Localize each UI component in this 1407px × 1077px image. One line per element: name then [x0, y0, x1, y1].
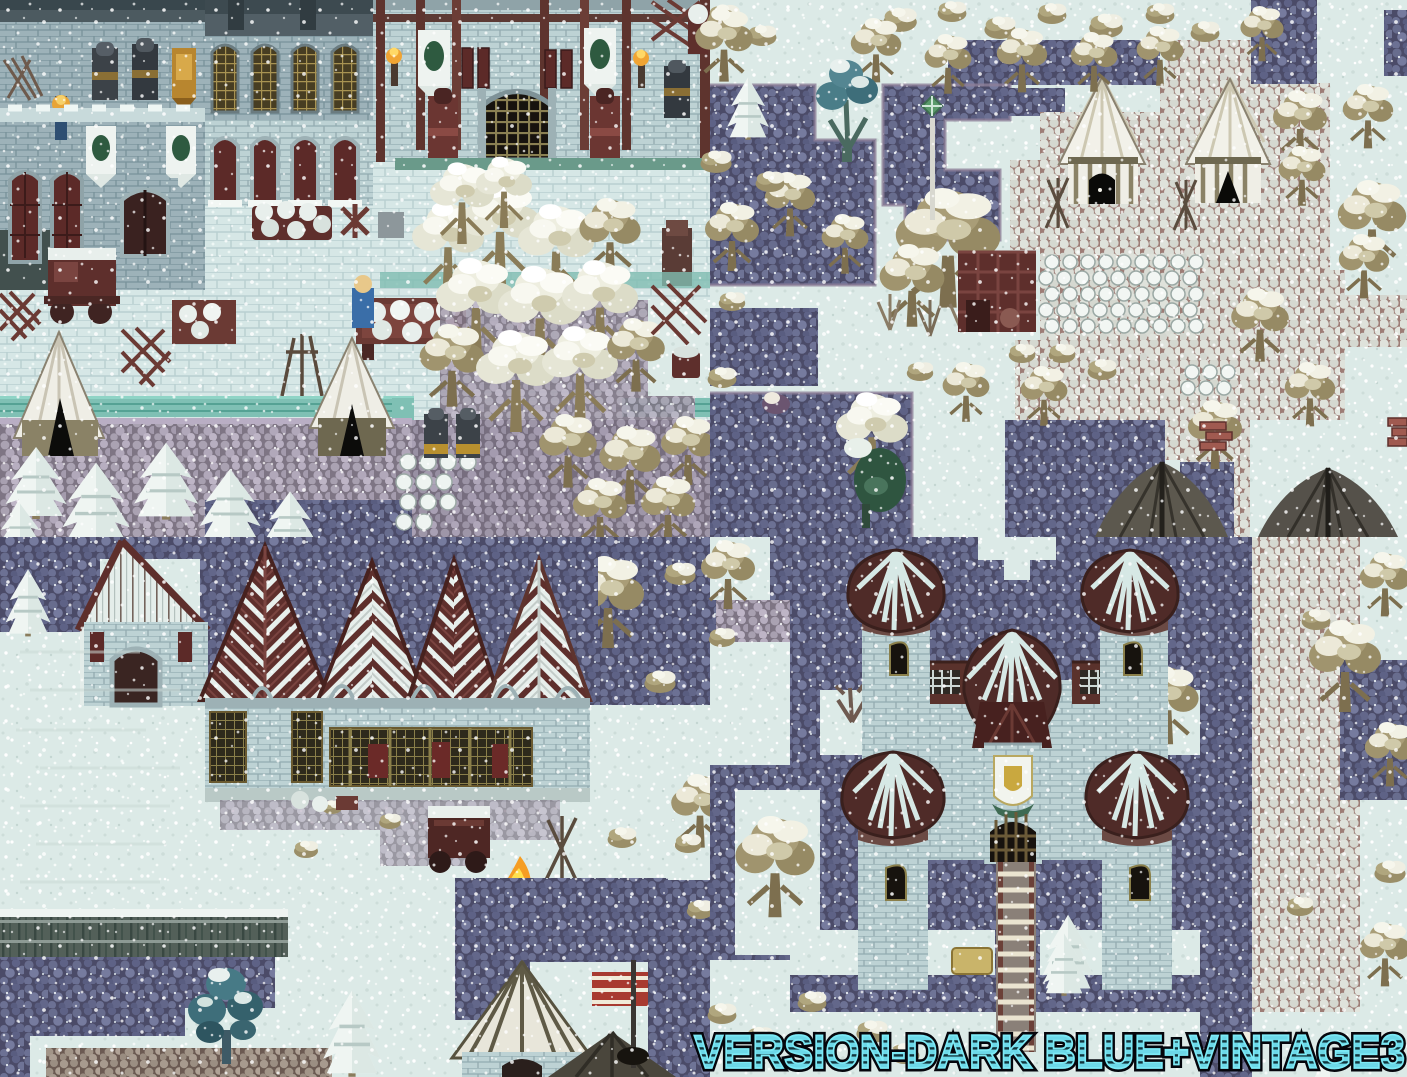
svg-text:VERSION-DARK BLUE+VINTAGE3: VERSION-DARK BLUE+VINTAGE3 — [694, 1025, 1405, 1077]
